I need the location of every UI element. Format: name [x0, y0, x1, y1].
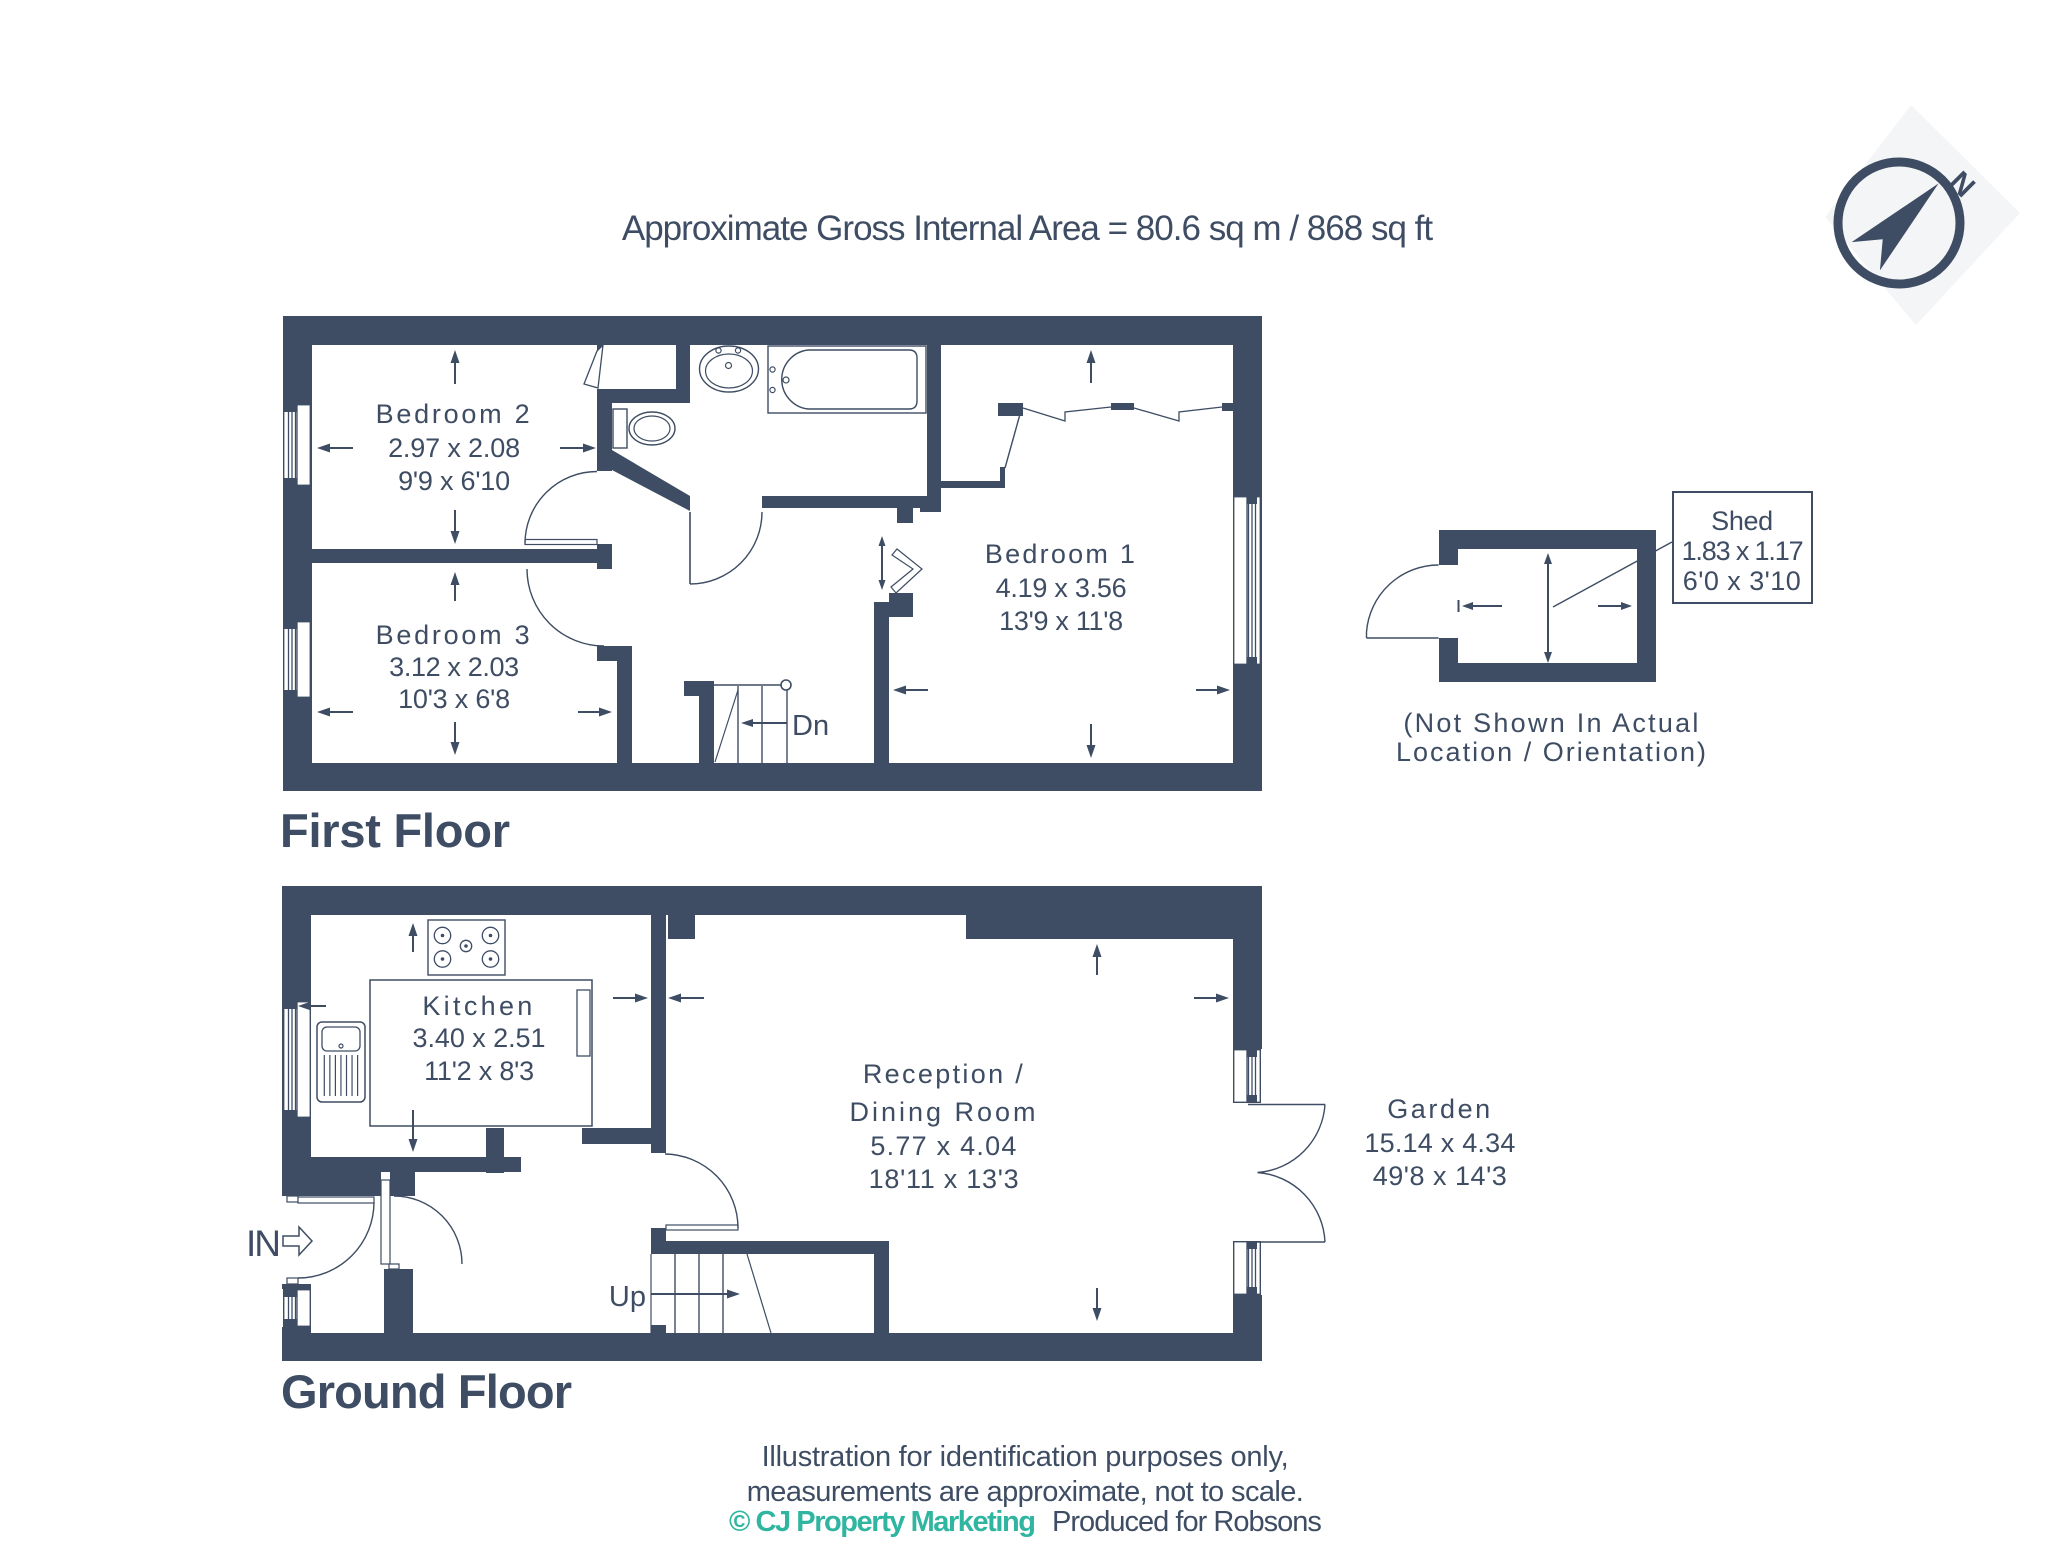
svg-text:2.97 x 2.08: 2.97 x 2.08 [388, 433, 520, 463]
svg-text:Reception /: Reception / [863, 1059, 1025, 1089]
svg-text:(Not Shown In Actual: (Not Shown In Actual [1403, 708, 1700, 738]
svg-text:Illustration for identificatio: Illustration for identification purposes… [762, 1441, 1289, 1473]
svg-text:3.12 x 2.03: 3.12 x 2.03 [389, 652, 519, 682]
svg-text:13'9 x 11'8: 13'9 x 11'8 [999, 606, 1123, 636]
svg-text:Approximate Gross Internal Are: Approximate Gross Internal Area = 80.6 s… [622, 209, 1434, 248]
svg-text:5.77 x 4.04: 5.77 x 4.04 [870, 1131, 1017, 1161]
svg-text:9'9 x 6'10: 9'9 x 6'10 [398, 466, 510, 496]
svg-text:Up: Up [609, 1281, 646, 1313]
svg-text:Bedroom 3: Bedroom 3 [376, 620, 533, 650]
svg-text:10'3 x 6'8: 10'3 x 6'8 [398, 684, 510, 714]
svg-text:6'0 x 3'10: 6'0 x 3'10 [1683, 566, 1802, 596]
svg-text:Location / Orientation): Location / Orientation) [1396, 737, 1708, 767]
svg-text:measurements are approximate,: measurements are approximate, not to sca… [747, 1476, 1304, 1508]
svg-text:© CJ Property MarketingProduce: © CJ Property MarketingProduced for Robs… [729, 1506, 1321, 1538]
svg-text:Dn: Dn [792, 710, 829, 742]
svg-text:First Floor: First Floor [280, 804, 510, 857]
svg-text:18'11 x 13'3: 18'11 x 13'3 [869, 1164, 1020, 1194]
svg-text:1.83 x 1.17: 1.83 x 1.17 [1682, 536, 1803, 566]
svg-text:Kitchen: Kitchen [422, 991, 535, 1021]
svg-text:Bedroom 2: Bedroom 2 [376, 399, 533, 429]
svg-text:IN: IN [246, 1223, 279, 1264]
svg-text:49'8 x 14'3: 49'8 x 14'3 [1373, 1161, 1508, 1191]
svg-text:Shed: Shed [1711, 506, 1773, 536]
svg-text:11'2 x 8'3: 11'2 x 8'3 [424, 1056, 534, 1086]
svg-text:Ground Floor: Ground Floor [281, 1365, 572, 1418]
svg-text:15.14 x 4.34: 15.14 x 4.34 [1364, 1128, 1515, 1158]
svg-text:3.40 x 2.51: 3.40 x 2.51 [413, 1023, 546, 1053]
svg-text:Bedroom 1: Bedroom 1 [985, 539, 1137, 569]
svg-text:Dining Room: Dining Room [850, 1097, 1039, 1127]
svg-text:Garden: Garden [1387, 1094, 1493, 1124]
svg-text:4.19 x 3.56: 4.19 x 3.56 [996, 573, 1127, 603]
